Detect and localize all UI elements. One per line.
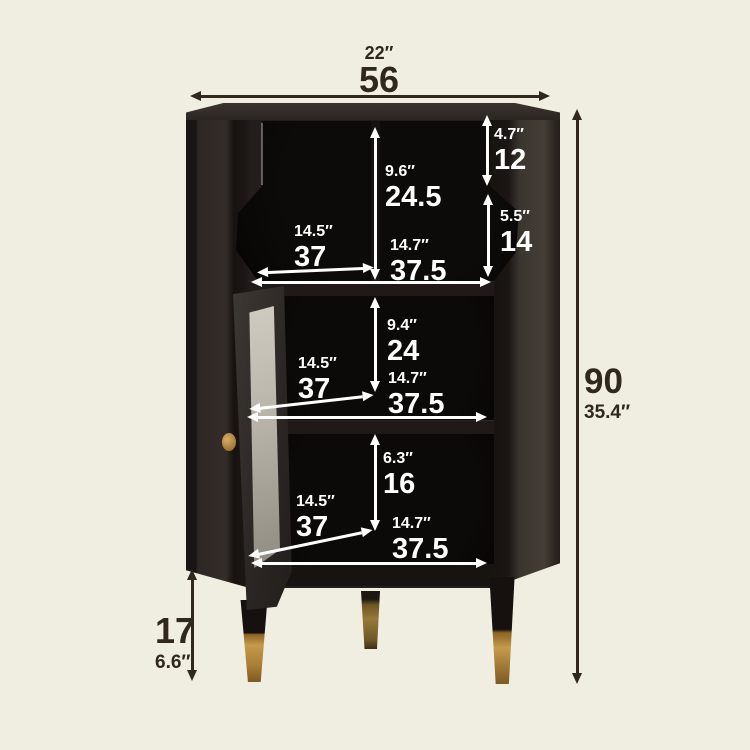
top-width-cm: 56	[339, 62, 419, 98]
opening-edge-highlight	[261, 123, 263, 185]
dim-label-top-width: 22″ 56	[339, 44, 419, 98]
arrow-overall-height	[576, 120, 579, 673]
front-right-leg	[487, 577, 517, 684]
arrow-middle-shelf-height	[374, 308, 377, 381]
dim-label-top-right-lower: 5.5″ 14	[500, 209, 532, 257]
product-dimension-image: 22″ 56 90 35.4″ 17 6.6″ 4.7″ 12 9.6″ 24.…	[0, 0, 750, 750]
center-leg	[358, 591, 383, 649]
dim-label-leg-height: 17 6.6″	[155, 613, 195, 672]
door-knob	[222, 433, 236, 451]
dim-label-middle-shelf-width: 14.7″ 37.5	[388, 371, 444, 419]
dim-label-bottom-shelf-width: 14.7″ 37.5	[392, 516, 448, 564]
dim-label-top-shelf-width: 14.7″ 37.5	[390, 238, 446, 286]
dim-label-top-right-upper: 4.7″ 12	[494, 127, 526, 175]
dim-label-bottom-shelf-depth: 14.5″ 37	[296, 494, 335, 542]
dim-label-top-shelf-height: 9.6″ 24.5	[385, 164, 441, 212]
arrow-top-shelf-height	[374, 138, 377, 269]
dim-label-bottom-shelf-height: 6.3″ 16	[383, 451, 415, 499]
dim-label-overall-height: 90 35.4″	[584, 364, 630, 422]
arrow-top-right-upper	[486, 126, 489, 175]
dim-label-middle-shelf-height: 9.4″ 24	[387, 318, 419, 366]
arrow-top-shelf-width	[262, 281, 480, 284]
arrow-bottom-shelf-height	[374, 445, 377, 520]
leg-height-cm: 17	[155, 613, 195, 649]
arrow-top-right-lower	[487, 205, 490, 266]
dim-label-top-shelf-depth: 14.5″ 37	[294, 224, 333, 272]
front-left-leg	[238, 600, 270, 682]
overall-height-cm: 90	[584, 364, 630, 399]
overall-height-inches: 35.4″	[584, 403, 630, 422]
dim-label-middle-shelf-depth: 14.5″ 37	[298, 356, 337, 404]
leg-height-inches: 6.6″	[155, 653, 195, 672]
